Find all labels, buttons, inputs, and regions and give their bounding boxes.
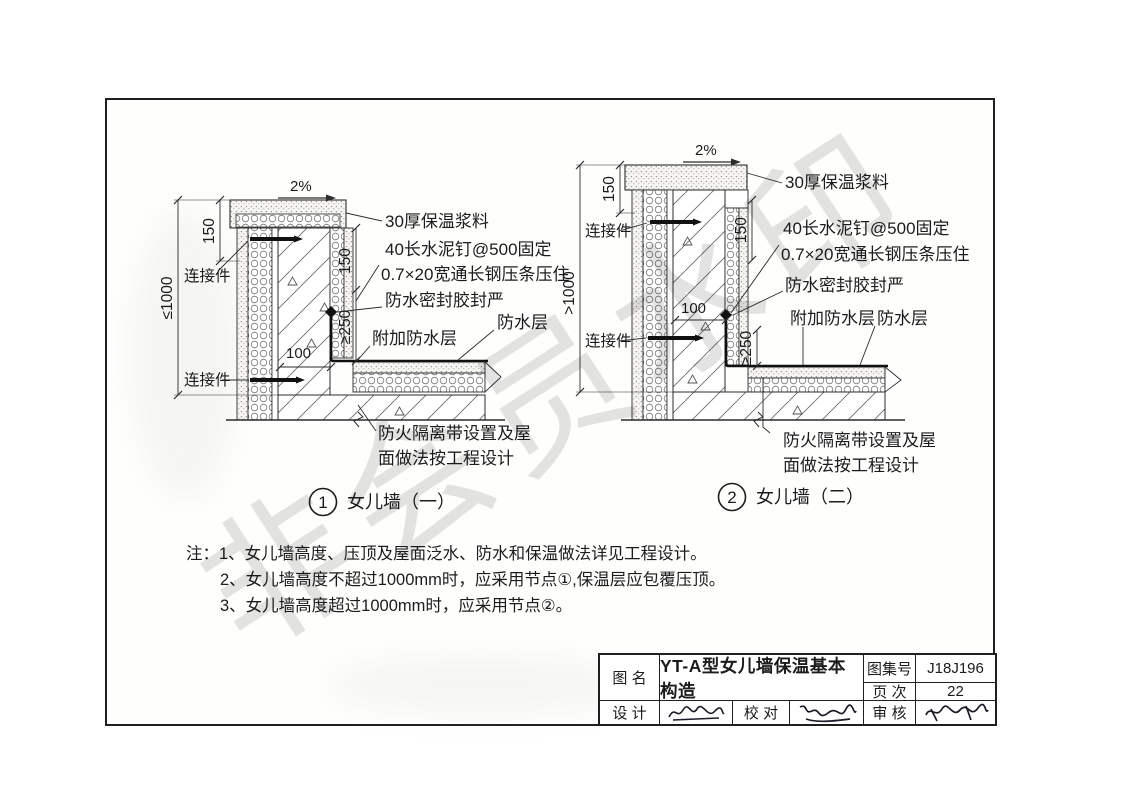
connector-label: 连接件 [585,222,632,240]
label-sealant: 防水密封胶封严 [385,291,504,310]
dim-100: 100 [681,300,706,317]
drawing-sheet: 2% ≤1000 150 150 ≥250 100 连接件 连接件 [0,0,1122,794]
detail1-title: 1 女儿墙（一） [310,489,456,516]
drawing-name-label: 图 名 [600,655,659,700]
label-insulation-mortar: 30厚保温浆料 [385,212,489,231]
detail2-slope: 2% [683,142,741,166]
connector-label: 连接件 [184,371,231,389]
detail1-labels: 30厚保温浆料 40长水泥钉@500固定 0.7×20宽通长钢压条压住 防水密封… [372,212,569,468]
signature-design-icon [665,702,727,724]
label-cement-nail: 40长水泥钉@500固定 [385,240,552,259]
label-firebreak-2: 面做法按工程设计 [378,449,514,468]
dim-inner-150: 150 [337,248,354,274]
proofreader-signature [789,700,863,724]
connector-label: 连接件 [585,332,632,350]
label-added-waterproof: 附加防水层 [372,329,457,348]
label-waterproof: 防水层 [497,313,548,332]
notes-prefix: 注： [186,545,219,563]
dim-upturn-250: ≥250 [337,309,354,344]
page-number-label: 页 次 [863,682,915,700]
detail-number: 2 [727,488,736,507]
dim-cap-150: 150 [601,176,618,202]
atlas-number-label: 图集号 [863,655,915,682]
detail-title: 女儿墙（一） [347,492,455,512]
detail-number: 1 [318,493,327,512]
drawing-name: YT-A型女儿墙保温基本构造 [659,655,863,700]
reviewer-signature [915,700,995,724]
designer-label: 设 计 [600,700,659,724]
detail1-slope: 2% [278,178,336,202]
detail-2-parapet-section: 2% >1000 150 150 ≥250 100 连接件 连接件 [555,115,1035,575]
signature-proof-icon [794,701,860,725]
detail2-labels: 30厚保温浆料 40长水泥钉@500固定 0.7×20宽通长钢压条压住 防水密封… [781,173,969,475]
dim-cap-150: 150 [201,218,218,244]
detail1-cap [230,200,346,228]
detail1-wall-section [237,228,353,420]
label-firebreak-2: 面做法按工程设计 [783,456,919,475]
atlas-number: J18J196 [915,655,995,682]
notes-block: 注：1、女儿墙高度、压顶及屋面泛水、防水和保温做法详见工程设计。 2、女儿墙高度… [186,541,846,619]
detail2-title: 2 女儿墙（二） [719,484,865,511]
connector-label: 连接件 [184,267,231,285]
label-added-waterproof: 附加防水层 [790,309,875,328]
dim-inner-150: 150 [733,217,750,243]
dim-100: 100 [286,345,311,362]
slope-label: 2% [290,178,312,195]
label-firebreak-1: 防火隔离带设置及屋 [378,424,531,443]
page-number: 22 [915,682,995,700]
designer-signature [659,700,732,724]
label-insulation-mortar: 30厚保温浆料 [785,173,889,192]
label-steel-strip: 0.7×20宽通长钢压条压住 [781,245,969,264]
label-sealant: 防水密封胶封严 [785,276,904,295]
title-block: 图 名 YT-A型女儿墙保温基本构造 图集号 J18J196 页 次 22 设 … [598,653,997,726]
dim-height-limit: >1000 [561,271,578,315]
note-item-2: 2、女儿墙高度不超过1000mm时，应采用节点①,保温层应包覆压顶。 [220,567,846,593]
note-item-1: 1、女儿墙高度、压顶及屋面泛水、防水和保温做法详见工程设计。 [219,545,707,563]
label-steel-strip: 0.7×20宽通长钢压条压住 [381,265,569,284]
label-cement-nail: 40长水泥钉@500固定 [783,219,950,238]
slope-label: 2% [695,142,717,159]
signature-review-icon [921,701,991,725]
dim-height-limit: ≤1000 [160,276,176,319]
label-firebreak-1: 防火隔离带设置及屋 [783,431,936,450]
label-waterproof: 防水层 [877,309,928,328]
note-line: 注：1、女儿墙高度、压顶及屋面泛水、防水和保温做法详见工程设计。 [186,541,846,567]
note-item-3: 3、女儿墙高度超过1000mm时，应采用节点②。 [220,593,846,619]
proofreader-label: 校 对 [732,700,789,724]
dim-upturn-250: ≥250 [738,330,755,365]
scan-ghost [330,655,630,715]
reviewer-label: 审 核 [863,700,915,724]
detail-title: 女儿墙（二） [756,487,864,507]
